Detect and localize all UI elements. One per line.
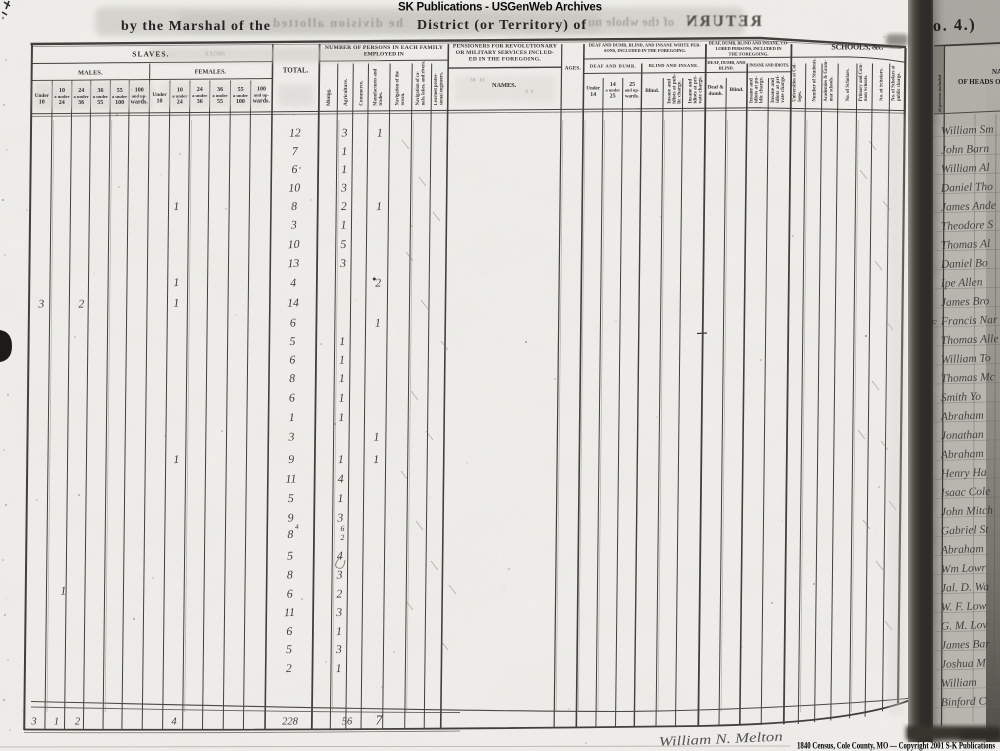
svg-text:John Mitch: John Mitch [941, 505, 994, 519]
svg-text:1840 Census, Cole County, MO —: 1840 Census, Cole County, MO — Copyright… [797, 741, 995, 751]
svg-text:James Bar: James Bar [941, 638, 991, 652]
svg-text:G. M. Lov: G. M. Lov [941, 619, 989, 633]
svg-text:Daniel Tho: Daniel Tho [940, 181, 994, 195]
svg-text:William Sm: William Sm [941, 124, 994, 138]
svg-text:John Barn: John Barn [941, 143, 990, 157]
svg-text:Joshua M: Joshua M [941, 657, 988, 671]
svg-text:James Ande: James Ande [941, 200, 996, 214]
svg-text:Binford C: Binford C [941, 695, 987, 709]
svg-text:W. F. Low: W. F. Low [941, 600, 987, 614]
svg-text:Francis Nar: Francis Nar [940, 314, 998, 328]
svg-text:Ipe Allen: Ipe Allen [940, 276, 983, 289]
svg-text:Abraham: Abraham [940, 543, 984, 557]
svg-text:Gabriel St: Gabriel St [941, 524, 990, 538]
svg-text:Theodore S: Theodore S [941, 219, 994, 233]
svg-text:Jal. D. Wa: Jal. D. Wa [941, 581, 990, 595]
svg-text:William To: William To [941, 352, 991, 366]
svg-text:Thomas Alle: Thomas Alle [941, 333, 999, 347]
svg-text:o. 4.): o. 4.) [932, 14, 976, 35]
svg-text:Daniel Bo: Daniel Bo [940, 257, 989, 271]
svg-text:Thomas Mc: Thomas Mc [941, 371, 995, 385]
svg-text:Henry Ha: Henry Ha [940, 467, 987, 481]
svg-text:James Bro: James Bro [941, 295, 990, 309]
svg-text:NAM: NAM [992, 68, 1000, 76]
svg-text:Abraham: Abraham [940, 448, 984, 462]
svg-text:Wm Lowr: Wm Lowr [941, 562, 987, 576]
svg-text:of persons included: of persons included [937, 74, 942, 112]
svg-text:Thomas Al: Thomas Al [941, 238, 991, 252]
svg-text:Abraham: Abraham [940, 410, 984, 424]
svg-text:F: F [930, 319, 937, 329]
svg-text:OF HEADS O: OF HEADS O [958, 78, 1000, 86]
svg-text:William Al: William Al [941, 162, 990, 176]
svg-text:William: William [941, 677, 977, 690]
svg-text:Jonathan: Jonathan [941, 429, 984, 442]
svg-text:Smith Yo: Smith Yo [941, 391, 982, 404]
svg-text:Isaac Cole: Isaac Cole [940, 486, 991, 500]
